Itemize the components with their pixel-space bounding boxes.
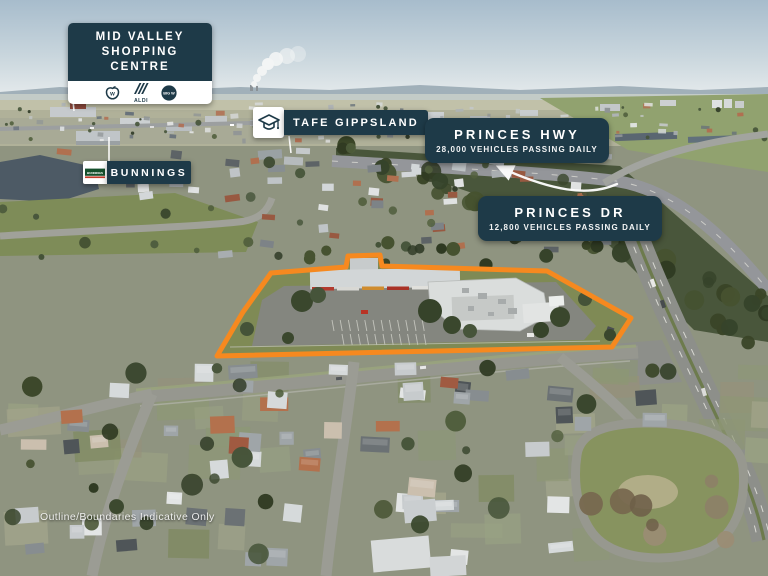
svg-text:BUNNINGS: BUNNINGS: [87, 170, 103, 174]
bunnings-logo-icon: BUNNINGS: [83, 161, 107, 184]
bigw-icon: BIG W: [161, 85, 177, 101]
label-princes-hwy: PRINCES HWY 28,000 VEHICLES PASSING DAIL…: [425, 118, 609, 163]
woolworths-icon: w: [104, 85, 121, 101]
tenant-logo-bar: w ALDI BIG W: [68, 81, 212, 104]
aerial-photo-stage: MID VALLEY SHOPPING CENTRE w ALDI BIG W …: [0, 0, 768, 576]
tafe-text: TAFE GIPPSLAND: [284, 110, 428, 135]
label-princes-dr: PRINCES DR 12,800 VEHICLES PASSING DAILY: [478, 196, 662, 241]
rear-building: [350, 258, 378, 270]
svg-text:ALDI: ALDI: [133, 98, 147, 103]
red-car: [361, 310, 368, 314]
bunnings-text: BUNNINGS: [107, 161, 191, 184]
label-tafe-gippsland: TAFE GIPPSLAND: [253, 107, 428, 138]
princes-dr-subtitle: 12,800 VEHICLES PASSING DAILY: [489, 223, 651, 232]
aldi-icon: ALDI: [133, 82, 149, 103]
princes-dr-title: PRINCES DR: [514, 205, 625, 220]
mid-valley-line1: MID VALLEY: [72, 30, 208, 45]
svg-text:BIG W: BIG W: [163, 91, 175, 95]
mid-valley-line2: SHOPPING CENTRE: [72, 45, 208, 75]
princes-hwy-title: PRINCES HWY: [454, 127, 580, 142]
princes-hwy-subtitle: 28,000 VEHICLES PASSING DAILY: [436, 145, 598, 154]
label-mid-valley-shopping-centre: MID VALLEY SHOPPING CENTRE w ALDI BIG W: [68, 23, 212, 104]
disclaimer-text: Outline/Boundaries Indicative Only: [40, 511, 215, 523]
mid-valley-title: MID VALLEY SHOPPING CENTRE: [68, 23, 212, 81]
graduation-cap-icon: [253, 107, 284, 138]
svg-text:w: w: [109, 91, 115, 97]
label-bunnings: BUNNINGS BUNNINGS: [83, 161, 191, 184]
